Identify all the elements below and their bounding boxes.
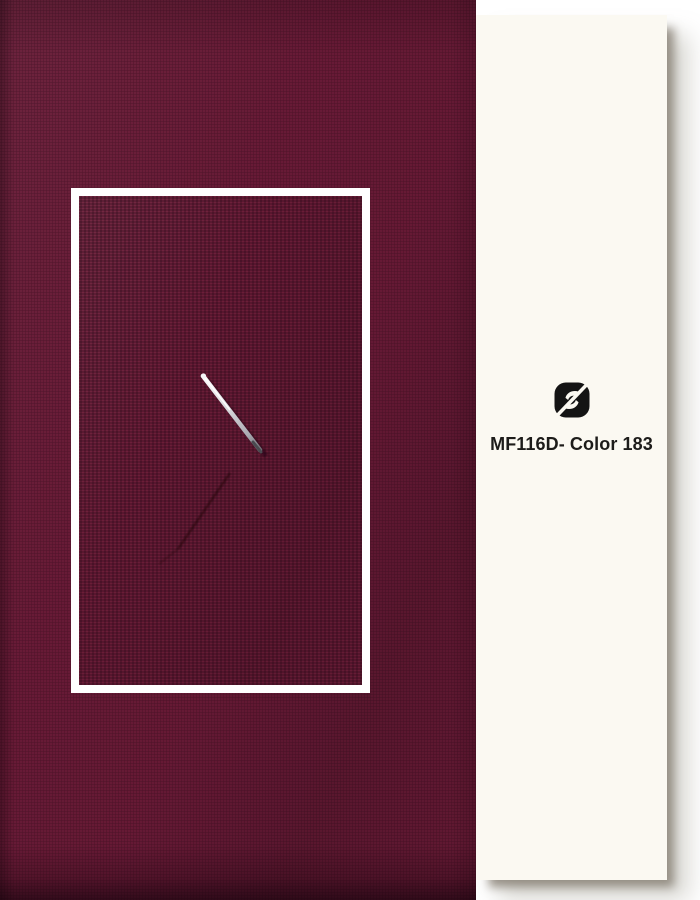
fj-monogram-logo-icon [551, 378, 593, 422]
fabric-swatch-photo [0, 0, 476, 900]
page: MF116D- Color 183 [0, 0, 700, 900]
fabric-zoom-inset-frame [71, 188, 370, 693]
fabric-crease [178, 473, 230, 549]
sewing-needle-icon [79, 196, 362, 685]
fabric-zoom-inset-photo [79, 196, 362, 685]
product-info-card: MF116D- Color 183 [476, 15, 667, 880]
product-code-label: MF116D- Color 183 [490, 434, 653, 456]
fabric-crease-tail [159, 549, 178, 564]
